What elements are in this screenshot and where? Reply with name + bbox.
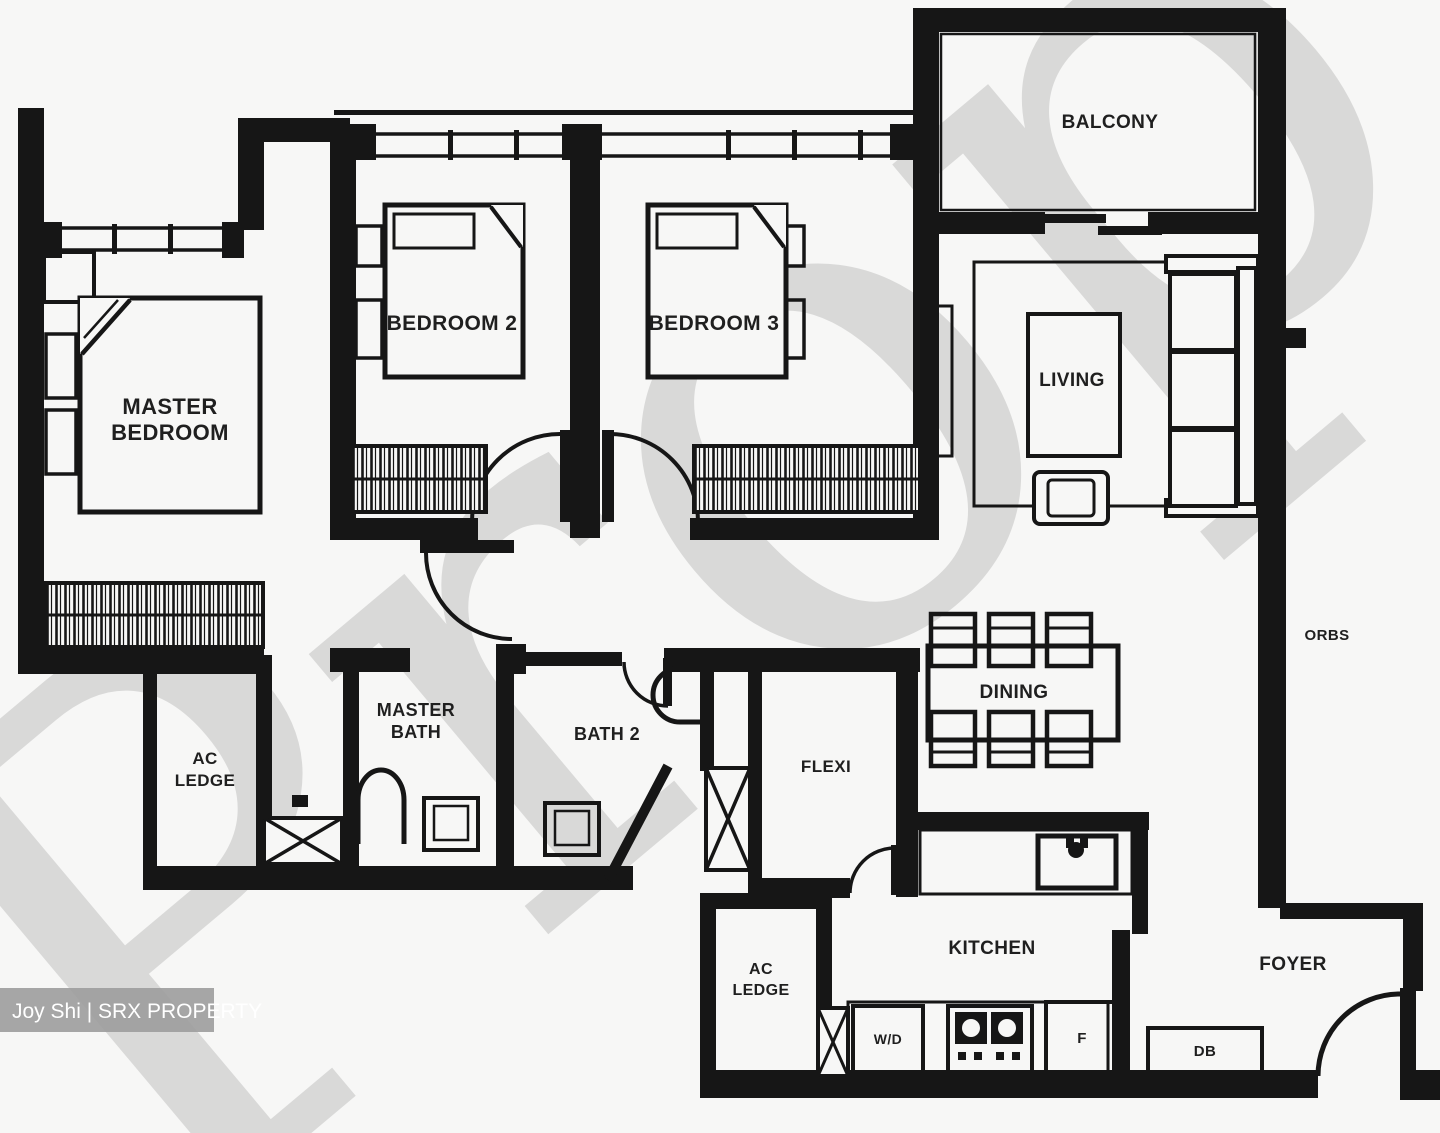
master-bedroom-furniture bbox=[44, 252, 260, 512]
stove-icon bbox=[948, 1006, 1032, 1072]
window-mullion bbox=[858, 130, 863, 160]
fridge-label: F bbox=[1077, 1030, 1087, 1047]
door-leaf bbox=[891, 845, 903, 895]
door-leaf bbox=[663, 658, 672, 706]
window-mullion bbox=[792, 130, 797, 160]
sofa-icon bbox=[1166, 256, 1258, 516]
balcony-label: BALCONY bbox=[1062, 112, 1159, 133]
bedroom-2-label: BEDROOM 2 bbox=[387, 312, 518, 335]
master-bath-label: BATH bbox=[391, 722, 441, 742]
bath-2-label: BATH 2 bbox=[574, 724, 640, 744]
wall bbox=[690, 518, 930, 540]
bedroom-3-furniture bbox=[648, 205, 804, 377]
window-mullion bbox=[168, 224, 173, 254]
entrance-door-arc bbox=[1318, 994, 1400, 1076]
master-bedroom-label: BEDROOM bbox=[111, 420, 229, 445]
wall bbox=[496, 655, 514, 881]
wall bbox=[343, 655, 359, 881]
wall bbox=[334, 110, 938, 115]
watermark: Prop bbox=[0, 0, 1440, 1133]
corridor-label: ORBS bbox=[1305, 627, 1350, 644]
wall bbox=[330, 124, 376, 160]
wall bbox=[700, 1070, 1318, 1098]
watermark-text: Prop bbox=[0, 0, 1440, 1133]
wall bbox=[748, 648, 920, 672]
washer-dryer-label: W/D bbox=[874, 1031, 902, 1047]
shaft-icon bbox=[264, 818, 342, 864]
foyer-label: FOYER bbox=[1259, 954, 1326, 975]
nightstand-icon bbox=[46, 410, 76, 474]
sliding-door-panel bbox=[1042, 214, 1106, 223]
wall bbox=[1403, 903, 1423, 991]
wall bbox=[18, 108, 44, 660]
cabinet-icon bbox=[44, 252, 94, 302]
bedroom-3-label: BEDROOM 3 bbox=[649, 312, 780, 335]
window-mullion bbox=[448, 130, 453, 160]
window bbox=[58, 228, 236, 250]
wall bbox=[700, 655, 714, 771]
wall bbox=[143, 866, 633, 890]
door-stub bbox=[292, 795, 308, 807]
master-bath-label: MASTER bbox=[377, 700, 455, 720]
window-mullion bbox=[726, 130, 731, 160]
dining-label: DINING bbox=[980, 682, 1049, 703]
wall bbox=[1286, 328, 1306, 348]
wall bbox=[913, 212, 1045, 234]
wall bbox=[330, 518, 478, 540]
wardrobe-icon bbox=[694, 446, 920, 512]
shaft-icon bbox=[706, 768, 750, 870]
ac-ledge-upper-label: LEDGE bbox=[175, 771, 236, 790]
floor-plan: Prop bbox=[0, 0, 1440, 1133]
db-label: DB bbox=[1194, 1043, 1216, 1060]
wall bbox=[18, 648, 264, 674]
wall bbox=[1132, 812, 1148, 934]
wall bbox=[1280, 903, 1408, 919]
wall bbox=[913, 8, 1285, 32]
floor-plan-canvas: Prop bbox=[0, 0, 1440, 1133]
wall bbox=[1148, 212, 1260, 234]
wall bbox=[330, 648, 410, 672]
door-leaf bbox=[602, 430, 614, 522]
counter bbox=[920, 830, 1132, 894]
wardrobe-icon bbox=[45, 583, 263, 647]
wall bbox=[905, 812, 1149, 830]
living-label: LIVING bbox=[1039, 370, 1105, 391]
bed-icon bbox=[648, 205, 786, 377]
nightstand-icon bbox=[46, 334, 76, 398]
wall bbox=[1258, 8, 1286, 908]
entrance-door-leaf bbox=[1400, 988, 1416, 1080]
bed-icon bbox=[385, 205, 523, 377]
door-leaf bbox=[560, 430, 572, 522]
door-leaf bbox=[420, 540, 514, 553]
kitchen-sink-icon bbox=[1038, 836, 1116, 888]
master-bedroom-label: MASTER bbox=[122, 394, 217, 419]
kitchen-label: KITCHEN bbox=[948, 938, 1035, 959]
sliding-door-panel bbox=[1098, 226, 1162, 235]
wall bbox=[526, 652, 622, 666]
shaft-icon bbox=[818, 1008, 848, 1076]
window-mullion bbox=[112, 224, 117, 254]
window-mullion bbox=[514, 130, 519, 160]
ac-ledge-lower-label: LEDGE bbox=[732, 982, 789, 999]
flexi-label: FLEXI bbox=[801, 757, 851, 776]
armchair-icon bbox=[1034, 472, 1108, 524]
wall bbox=[143, 655, 157, 883]
wall bbox=[570, 152, 600, 538]
ac-ledge-lower-label: AC bbox=[749, 961, 773, 978]
ac-ledge-upper-label: AC bbox=[192, 749, 217, 768]
wall bbox=[700, 893, 832, 909]
wall bbox=[700, 893, 716, 1093]
credit-text: Joy Shi | SRX PROPERTY bbox=[12, 1000, 262, 1023]
wardrobe-icon bbox=[352, 446, 486, 512]
